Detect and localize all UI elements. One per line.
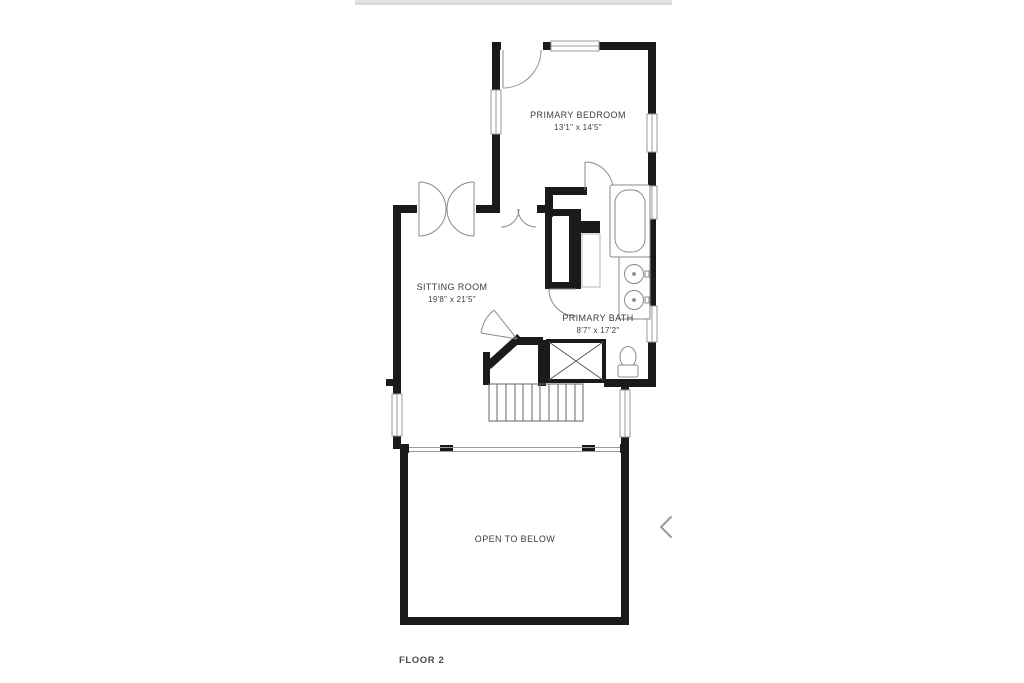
floor-plan-image: PRIMARY BEDROOM 13'1" x 14'5" SITTING RO… [0,0,1024,683]
room-label-primary-bath: PRIMARY BATH [562,313,633,323]
room-dim-primary-bath: 8'7" x 17'2" [576,326,619,335]
previous-photo-edge [355,0,672,5]
window-icon [551,41,599,51]
toilet-icon [618,347,638,378]
vanity-sink-icon [619,257,650,319]
room-label-primary-bedroom: PRIMARY BEDROOM [530,110,626,120]
window-icon [392,394,402,436]
room-dim-primary-bedroom: 13'1" x 14'5" [554,123,602,132]
bathtub-icon [610,185,650,257]
room-label-open-to-below: OPEN TO BELOW [475,534,555,544]
closet-shelf [582,234,600,287]
window-icon [491,90,501,134]
room-dim-sitting-room: 19'8" x 21'5" [428,295,476,304]
window-icon [620,390,630,437]
floor-label: FLOOR 2 [399,655,444,666]
window-icon [647,114,657,152]
photo-viewer: PRIMARY BEDROOM 13'1" x 14'5" SITTING RO… [0,0,1024,683]
room-label-sitting-room: SITTING ROOM [417,282,488,292]
